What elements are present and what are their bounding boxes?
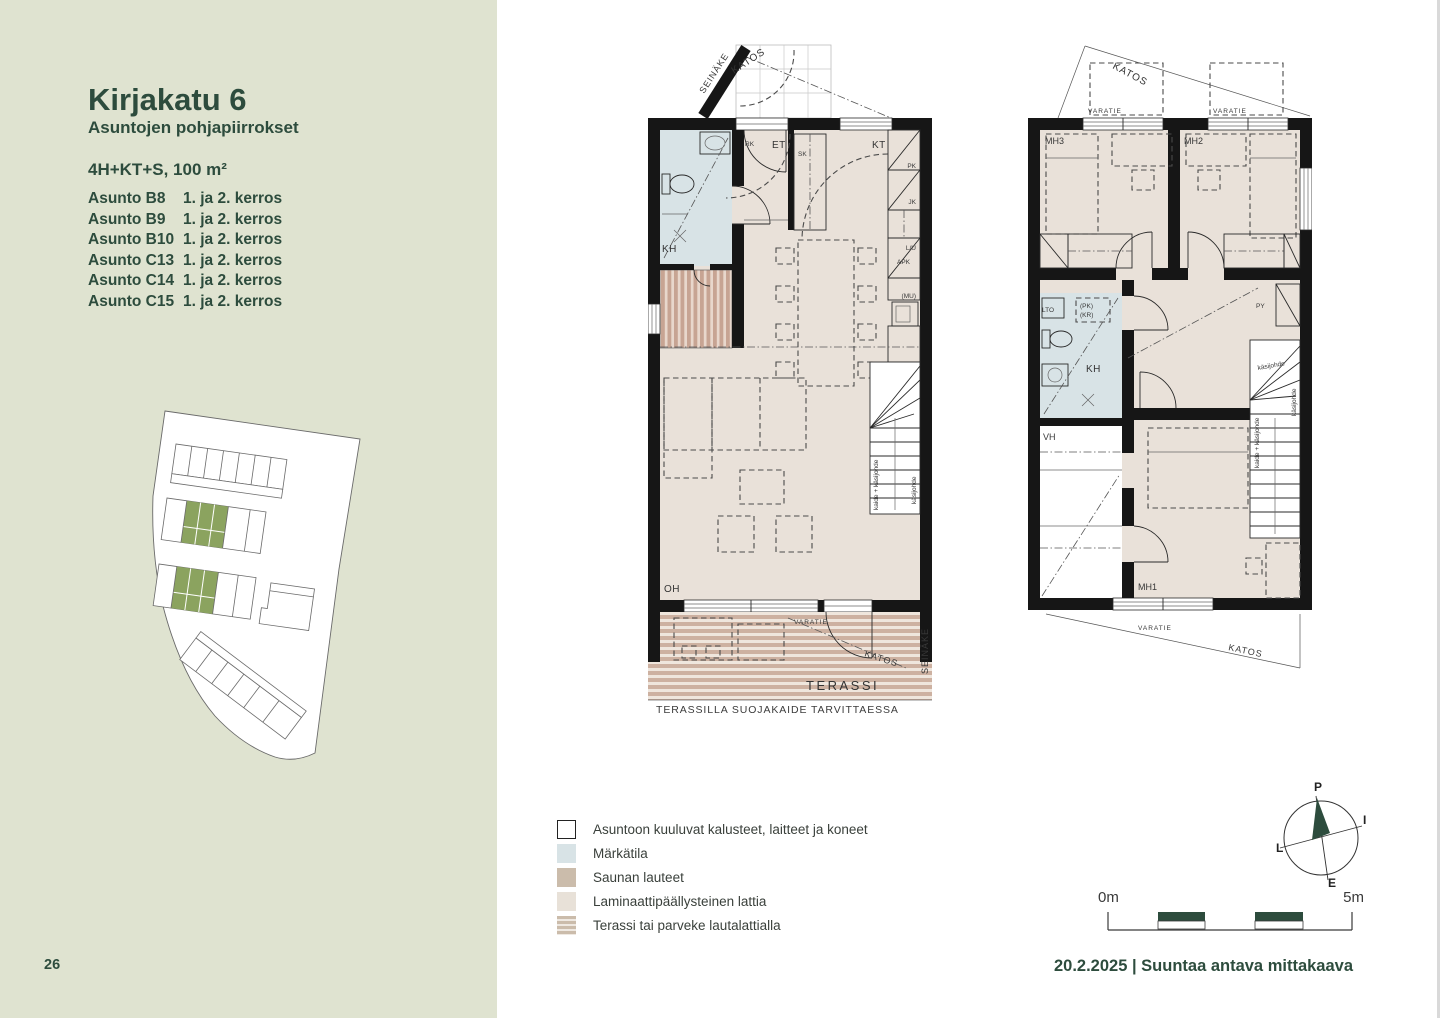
apartment-floors: 1. ja 2. kerros [183,292,282,313]
oh-label: OH [664,584,680,595]
scale-bar: 0m 5m [1096,886,1366,936]
terassi-label: TERASSI [806,678,879,693]
footer-text: 20.2.2025 | Suuntaa antava mittakaava [1011,957,1353,976]
apartment-name: Asunto C15 [88,292,183,313]
pk2-label: (PK) [1080,303,1093,310]
page-title: Kirjakatu 6 [88,82,247,118]
scale-end: 5m [1343,889,1364,906]
mh2-label: MH2 [1184,136,1203,146]
varatie-left-label: VARATIE [1088,108,1122,115]
apartment-name: Asunto B10 [88,230,183,251]
legend-label: Terassi tai parveke lautalattialla [593,918,781,933]
sauna-benches [660,270,732,348]
apartment-row: Asunto C151. ja 2. kerros [88,292,282,313]
apartment-name: Asunto C14 [88,271,183,292]
rk-label: RK [745,141,755,148]
legend-swatch-sauna [557,868,576,887]
sidebar: Kirjakatu 6 Asuntojen pohjapiirrokset 4H… [0,0,497,1018]
compass-east: I [1363,813,1366,827]
mh3-label: MH3 [1045,136,1064,146]
page-subtitle: Asuntojen pohjapiirrokset [88,118,299,138]
terrace-seinake-label: SEINÄKE [920,628,930,674]
pk-label: PK [907,163,916,170]
kt-label: KT [872,140,886,151]
mu-label: (MU) [902,293,916,300]
stair2-handrail-side: käsijohde [1291,388,1298,416]
vh-label: VH [1043,432,1056,442]
apartment-row: Asunto C141. ja 2. kerros [88,271,282,292]
apartment-floors: 1. ja 2. kerros [183,210,282,231]
legend-label: Märkätila [593,846,648,861]
legend-swatch-deck [557,916,576,935]
apartment-row: Asunto B101. ja 2. kerros [88,230,282,251]
scale-start: 0m [1098,889,1119,906]
apartment-row: Asunto B91. ja 2. kerros [88,210,282,231]
legend-label: Laminaattipäällysteinen lattia [593,894,766,909]
apartment-name: Asunto B9 [88,210,183,231]
legend-label: Saunan lauteet [593,870,684,885]
jk-label: JK [908,199,916,206]
apartment-floors: 1. ja 2. kerros [183,271,282,292]
stair-rail-label: kaide + käsijohde [873,459,880,510]
mh1-label: MH1 [1138,582,1157,592]
lu-label: L/U [906,245,916,252]
legend-row: Saunan lauteet [557,865,868,889]
stair-handrail-label: käsijohde [911,476,918,504]
varatie-right-label: VARATIE [1213,108,1247,115]
page-number: 26 [44,957,60,973]
kr-label: (KR) [1080,312,1093,319]
apartment-floors: 1. ja 2. kerros [183,189,282,210]
compass-needle [1312,798,1330,840]
et-label: ET [772,140,786,151]
apartment-floors: 1. ja 2. kerros [183,230,282,251]
site-plan-map [143,406,368,774]
legend-swatch-laminate [557,892,576,911]
lto-label: LTO [1042,307,1054,314]
legend-row: Asuntoon kuuluvat kalusteet, laitteet ja… [557,817,868,841]
sk-label: SK [798,151,807,158]
legend-row: Märkätila [557,841,868,865]
legend: Asuntoon kuuluvat kalusteet, laitteet ja… [557,817,868,937]
katos-wedge [1046,614,1300,668]
unit-type: 4H+KT+S, 100 m² [88,160,227,180]
apartment-floors: 1. ja 2. kerros [183,251,282,272]
kh2-label: KH [1086,364,1101,375]
floor1-plan: SEINÄKE KATOS [648,43,932,703]
compass-rose: P I E L [1276,780,1368,888]
floor2-plan: KATOS VARATIE VARATIE [1028,43,1312,678]
legend-swatch-wetroom [557,844,576,863]
terrace-varatie-label: VARATIE [794,619,828,626]
stair2-rail-label: kaide + käsijohde [1254,417,1261,468]
py-label: PY [1256,303,1265,310]
legend-label: Asuntoon kuuluvat kalusteet, laitteet ja… [593,822,868,837]
apartment-name: Asunto C13 [88,251,183,272]
apartment-row: Asunto C131. ja 2. kerros [88,251,282,272]
compass-north: P [1314,780,1322,794]
varatie-bottom-label: VARATIE [1138,625,1172,632]
apartment-name: Asunto B8 [88,189,183,210]
legend-row: Terassi tai parveke lautalattialla [557,913,868,937]
legend-swatch-fixtures [557,820,576,839]
legend-row: Laminaattipäällysteinen lattia [557,889,868,913]
terrace-caption: TERASSILLA SUOJAKAIDE TARVITTAESSA [656,704,899,716]
brochure-page: Kirjakatu 6 Asuntojen pohjapiirrokset 4H… [0,0,1440,1018]
kh-label: KH [662,244,677,255]
compass-west: L [1276,841,1283,855]
apartment-row: Asunto B81. ja 2. kerros [88,189,282,210]
katos-top-label: KATOS [1111,61,1150,89]
apartment-list: Asunto B81. ja 2. kerros Asunto B91. ja … [88,189,282,313]
apk-label: APK [897,259,911,266]
